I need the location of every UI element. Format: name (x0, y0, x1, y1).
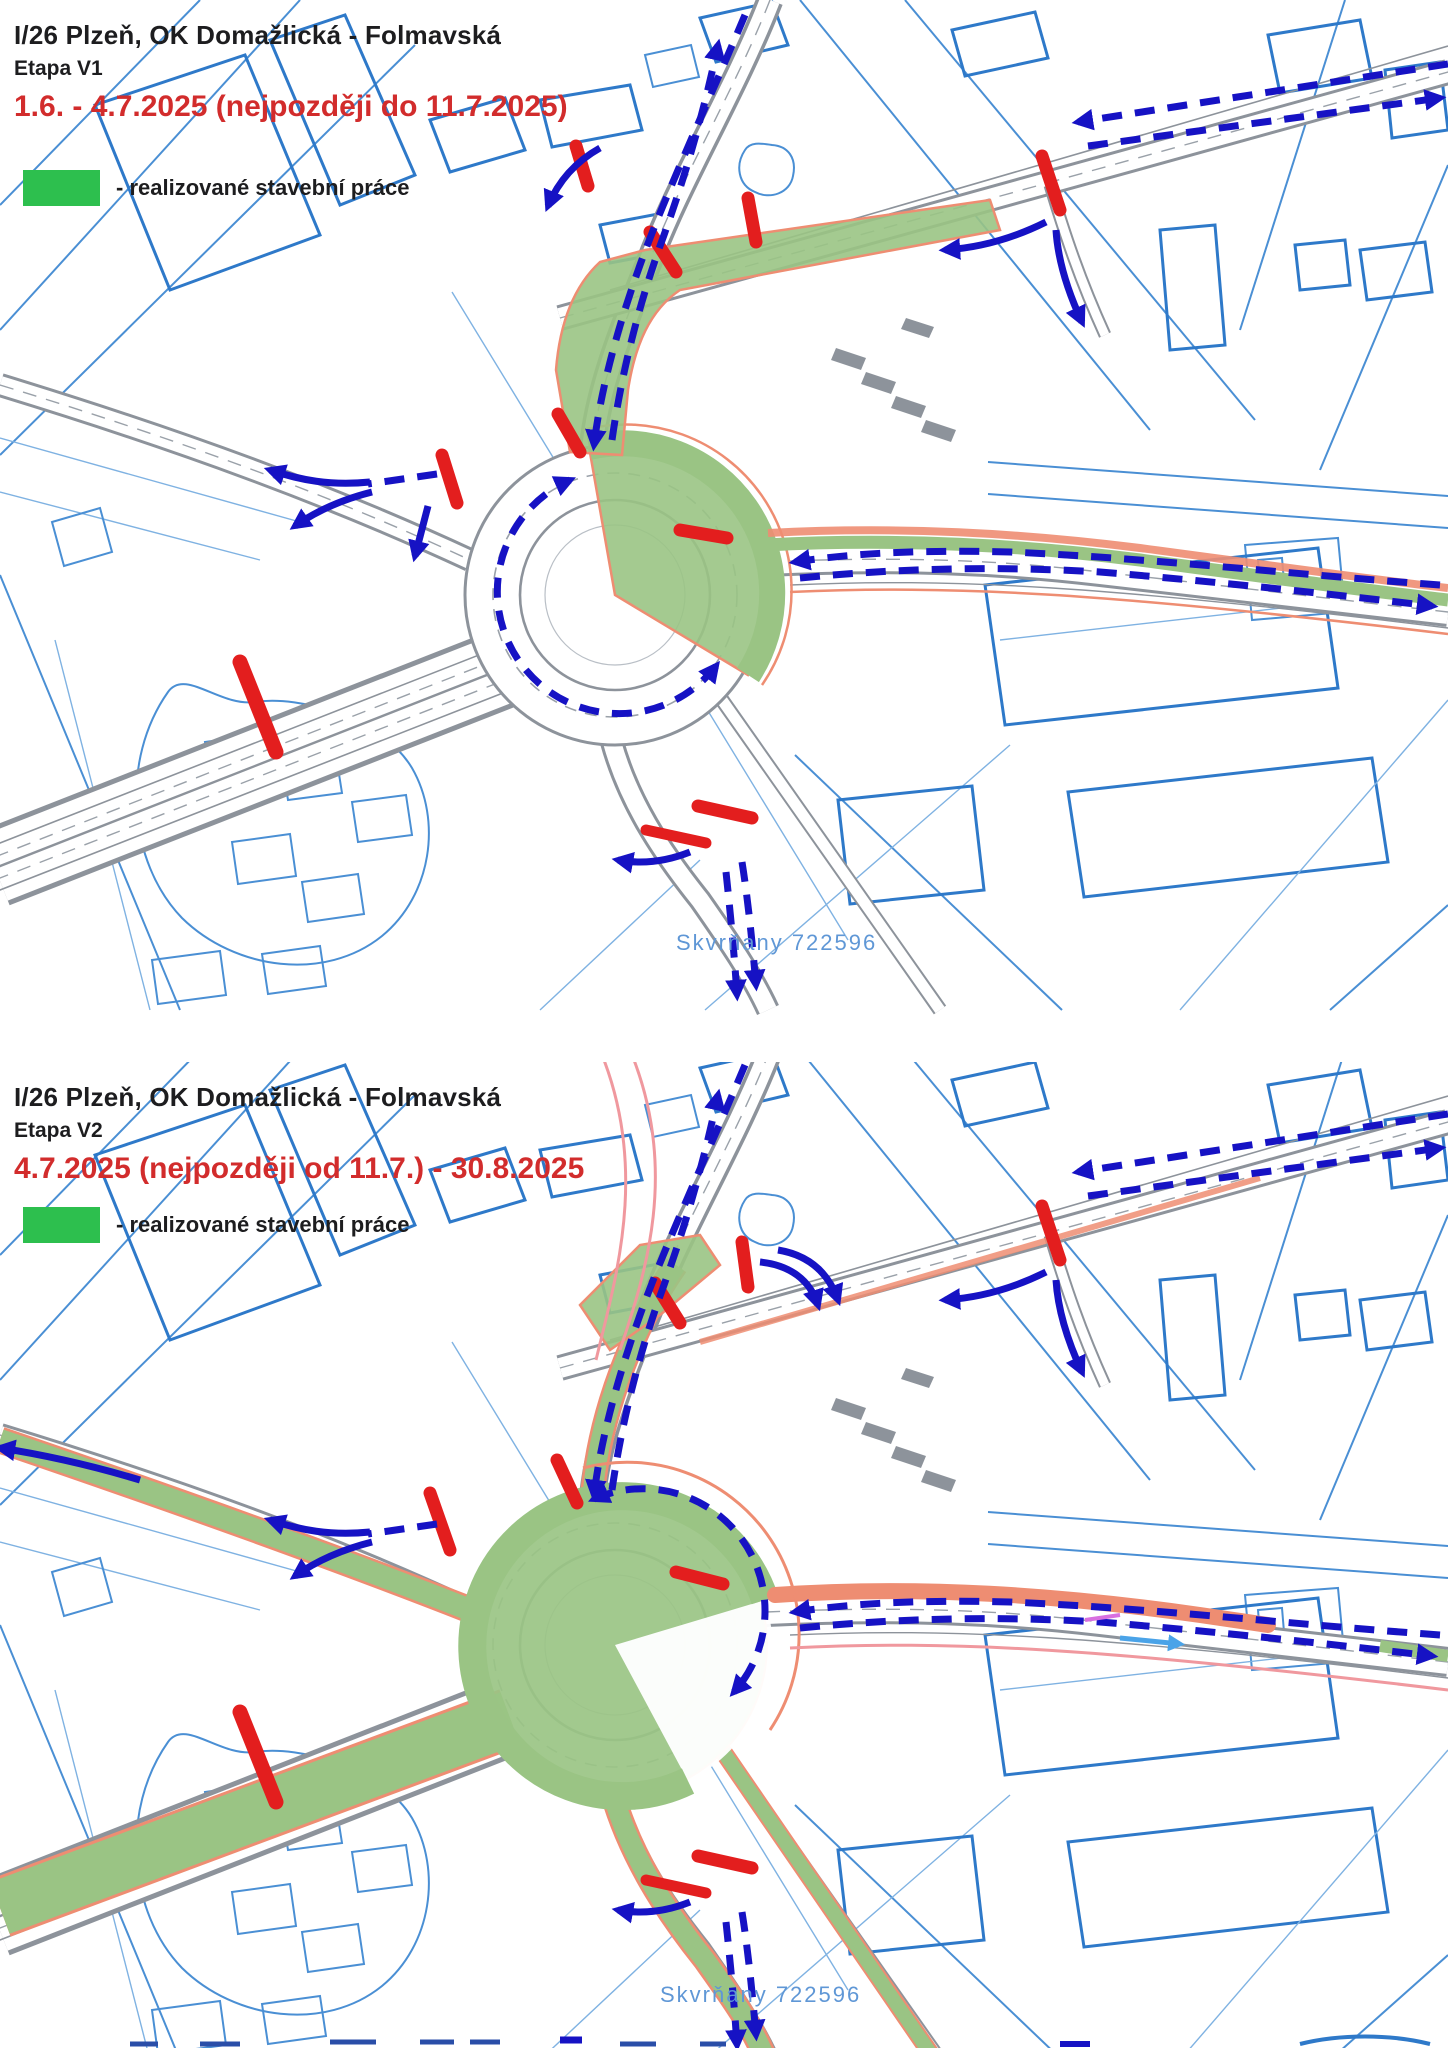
cut-off-footer-marks (130, 2037, 1430, 2045)
cadastral-watermark: Skvrňany 722596 (676, 930, 877, 956)
legend-label: - realizované stavební práce (116, 175, 409, 201)
closure-bar (1042, 156, 1060, 210)
closure-bar (1042, 1206, 1060, 1260)
closure-bar (442, 455, 457, 503)
legend-swatch-green (23, 170, 100, 206)
date-range: 1.6. - 4.7.2025 (nejpozději do 11.7.2025… (14, 90, 568, 124)
cadastral-watermark: Skvrňany 722596 (660, 1982, 861, 2008)
panel-etapa-v2: I/26 Plzeň, OK Domažlická - Folmavská Et… (0, 1062, 1448, 2048)
date-range: 4.7.2025 (nejpozději od 11.7.) - 30.8.20… (14, 1152, 584, 1186)
closure-bar (680, 530, 727, 538)
map-etapa-v1 (0, 0, 1448, 1015)
panel-etapa-v1: I/26 Plzeň, OK Domažlická - Folmavská Et… (0, 0, 1448, 1015)
closure-bar (698, 806, 752, 818)
stage-label: Etapa V1 (14, 57, 568, 81)
legend-v1: - realizované stavební práce (23, 170, 409, 206)
closure-bar (748, 198, 756, 242)
closure-bar (698, 1856, 752, 1868)
legend-v2: - realizované stavební práce (23, 1207, 409, 1243)
traffic-plan-page: I/26 Plzeň, OK Domažlická - Folmavská Et… (0, 0, 1448, 2048)
header-v2: I/26 Plzeň, OK Domažlická - Folmavská Et… (14, 1082, 584, 1186)
header-v1: I/26 Plzeň, OK Domažlická - Folmavská Et… (14, 20, 568, 124)
legend-label: - realizované stavební práce (116, 1212, 409, 1238)
closure-bar (742, 1242, 748, 1287)
page-title: I/26 Plzeň, OK Domažlická - Folmavská (14, 20, 568, 51)
page-title: I/26 Plzeň, OK Domažlická - Folmavská (14, 1082, 584, 1113)
legend-swatch-green (23, 1207, 100, 1243)
stage-label: Etapa V2 (14, 1119, 584, 1143)
